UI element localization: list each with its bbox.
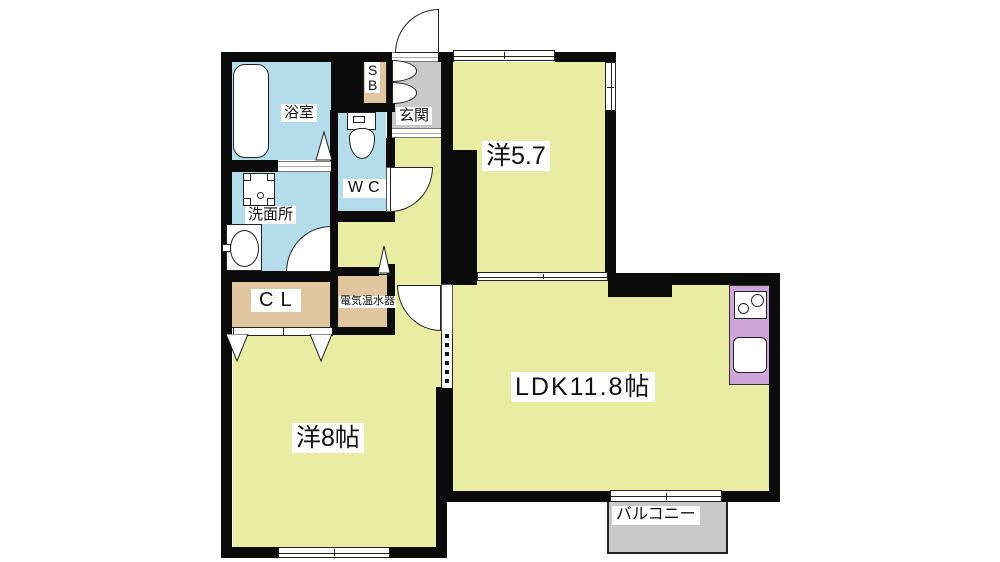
pan-corner <box>243 173 251 181</box>
bath-label: 浴室 <box>281 104 317 122</box>
wc-label: WC <box>343 179 386 198</box>
wall-right-ldk <box>769 273 780 502</box>
stove-burner-large <box>751 294 764 307</box>
kitchen-sink <box>733 337 767 373</box>
wall-heater-bottom <box>330 327 395 335</box>
heater-folding-door-icon <box>377 245 391 274</box>
washbasin-faucet <box>222 244 231 252</box>
western8-label: 洋8帖 <box>292 423 364 453</box>
entry-step-line <box>392 128 441 138</box>
wall-wc-top <box>338 103 395 112</box>
closet-folding-door-icon-right <box>309 334 333 362</box>
window-57-top <box>453 50 555 61</box>
ldk-door-opening <box>441 284 453 335</box>
western57-label: 洋5.7 <box>482 141 550 171</box>
washroom-label: 洗面所 <box>245 206 296 224</box>
wall-left <box>221 52 232 558</box>
stove <box>734 291 767 319</box>
wall-wc-bottom <box>330 211 395 222</box>
washbasin-bowl <box>230 230 259 267</box>
washbasin-counter <box>226 224 262 271</box>
wall-hall-57-thin <box>441 52 453 150</box>
wall-wc-right-upper <box>386 138 395 168</box>
bathtub <box>233 64 269 158</box>
wall-west8-right-low <box>436 502 447 558</box>
wall-washroom-bottom <box>232 271 330 282</box>
pan-corner <box>267 173 275 181</box>
water-heater-label: 電気温水器 <box>339 296 396 308</box>
shoebox-label: SB <box>365 62 380 93</box>
partition-57-ldk <box>477 272 608 281</box>
sliding-door-west8-ldk <box>441 334 453 388</box>
wall-top-left <box>221 52 392 62</box>
drain-circle <box>257 192 264 199</box>
window-west8-bottom <box>278 547 390 558</box>
wall-hall-57-block <box>441 150 477 285</box>
closet-folding-door-icon-left <box>225 334 249 362</box>
bath-door-opening <box>278 161 331 172</box>
wall-ldk-west8 <box>436 387 453 491</box>
closet-label: CL <box>251 289 301 312</box>
stove-burner-small <box>738 303 749 314</box>
toilet-flush-button <box>353 116 365 123</box>
floor-plan: 浴室 洗面所 WC SB 玄関 洋5.7 LDK11.8帖 洋8帖 CL 電気温… <box>0 0 1000 562</box>
bath-folding-door-icon <box>315 131 333 161</box>
wall-heater-top <box>330 267 379 276</box>
pan-corner <box>267 198 275 206</box>
wall-bottom-ldk <box>436 491 780 502</box>
wall-bath-bottom <box>232 160 278 172</box>
washing-machine-pan <box>243 173 275 206</box>
entrance-label: 玄関 <box>396 107 432 125</box>
balcony-label: バルコニー <box>612 506 700 525</box>
pan-corner <box>243 198 251 206</box>
window-57-right <box>605 62 616 111</box>
wall-pillar-ldk-top <box>608 273 672 297</box>
ldk-label: LDK11.8帖 <box>511 372 655 402</box>
wall-right-57 <box>605 110 616 277</box>
window-ldk-bottom <box>610 490 722 502</box>
entry-door-arc <box>395 9 439 53</box>
